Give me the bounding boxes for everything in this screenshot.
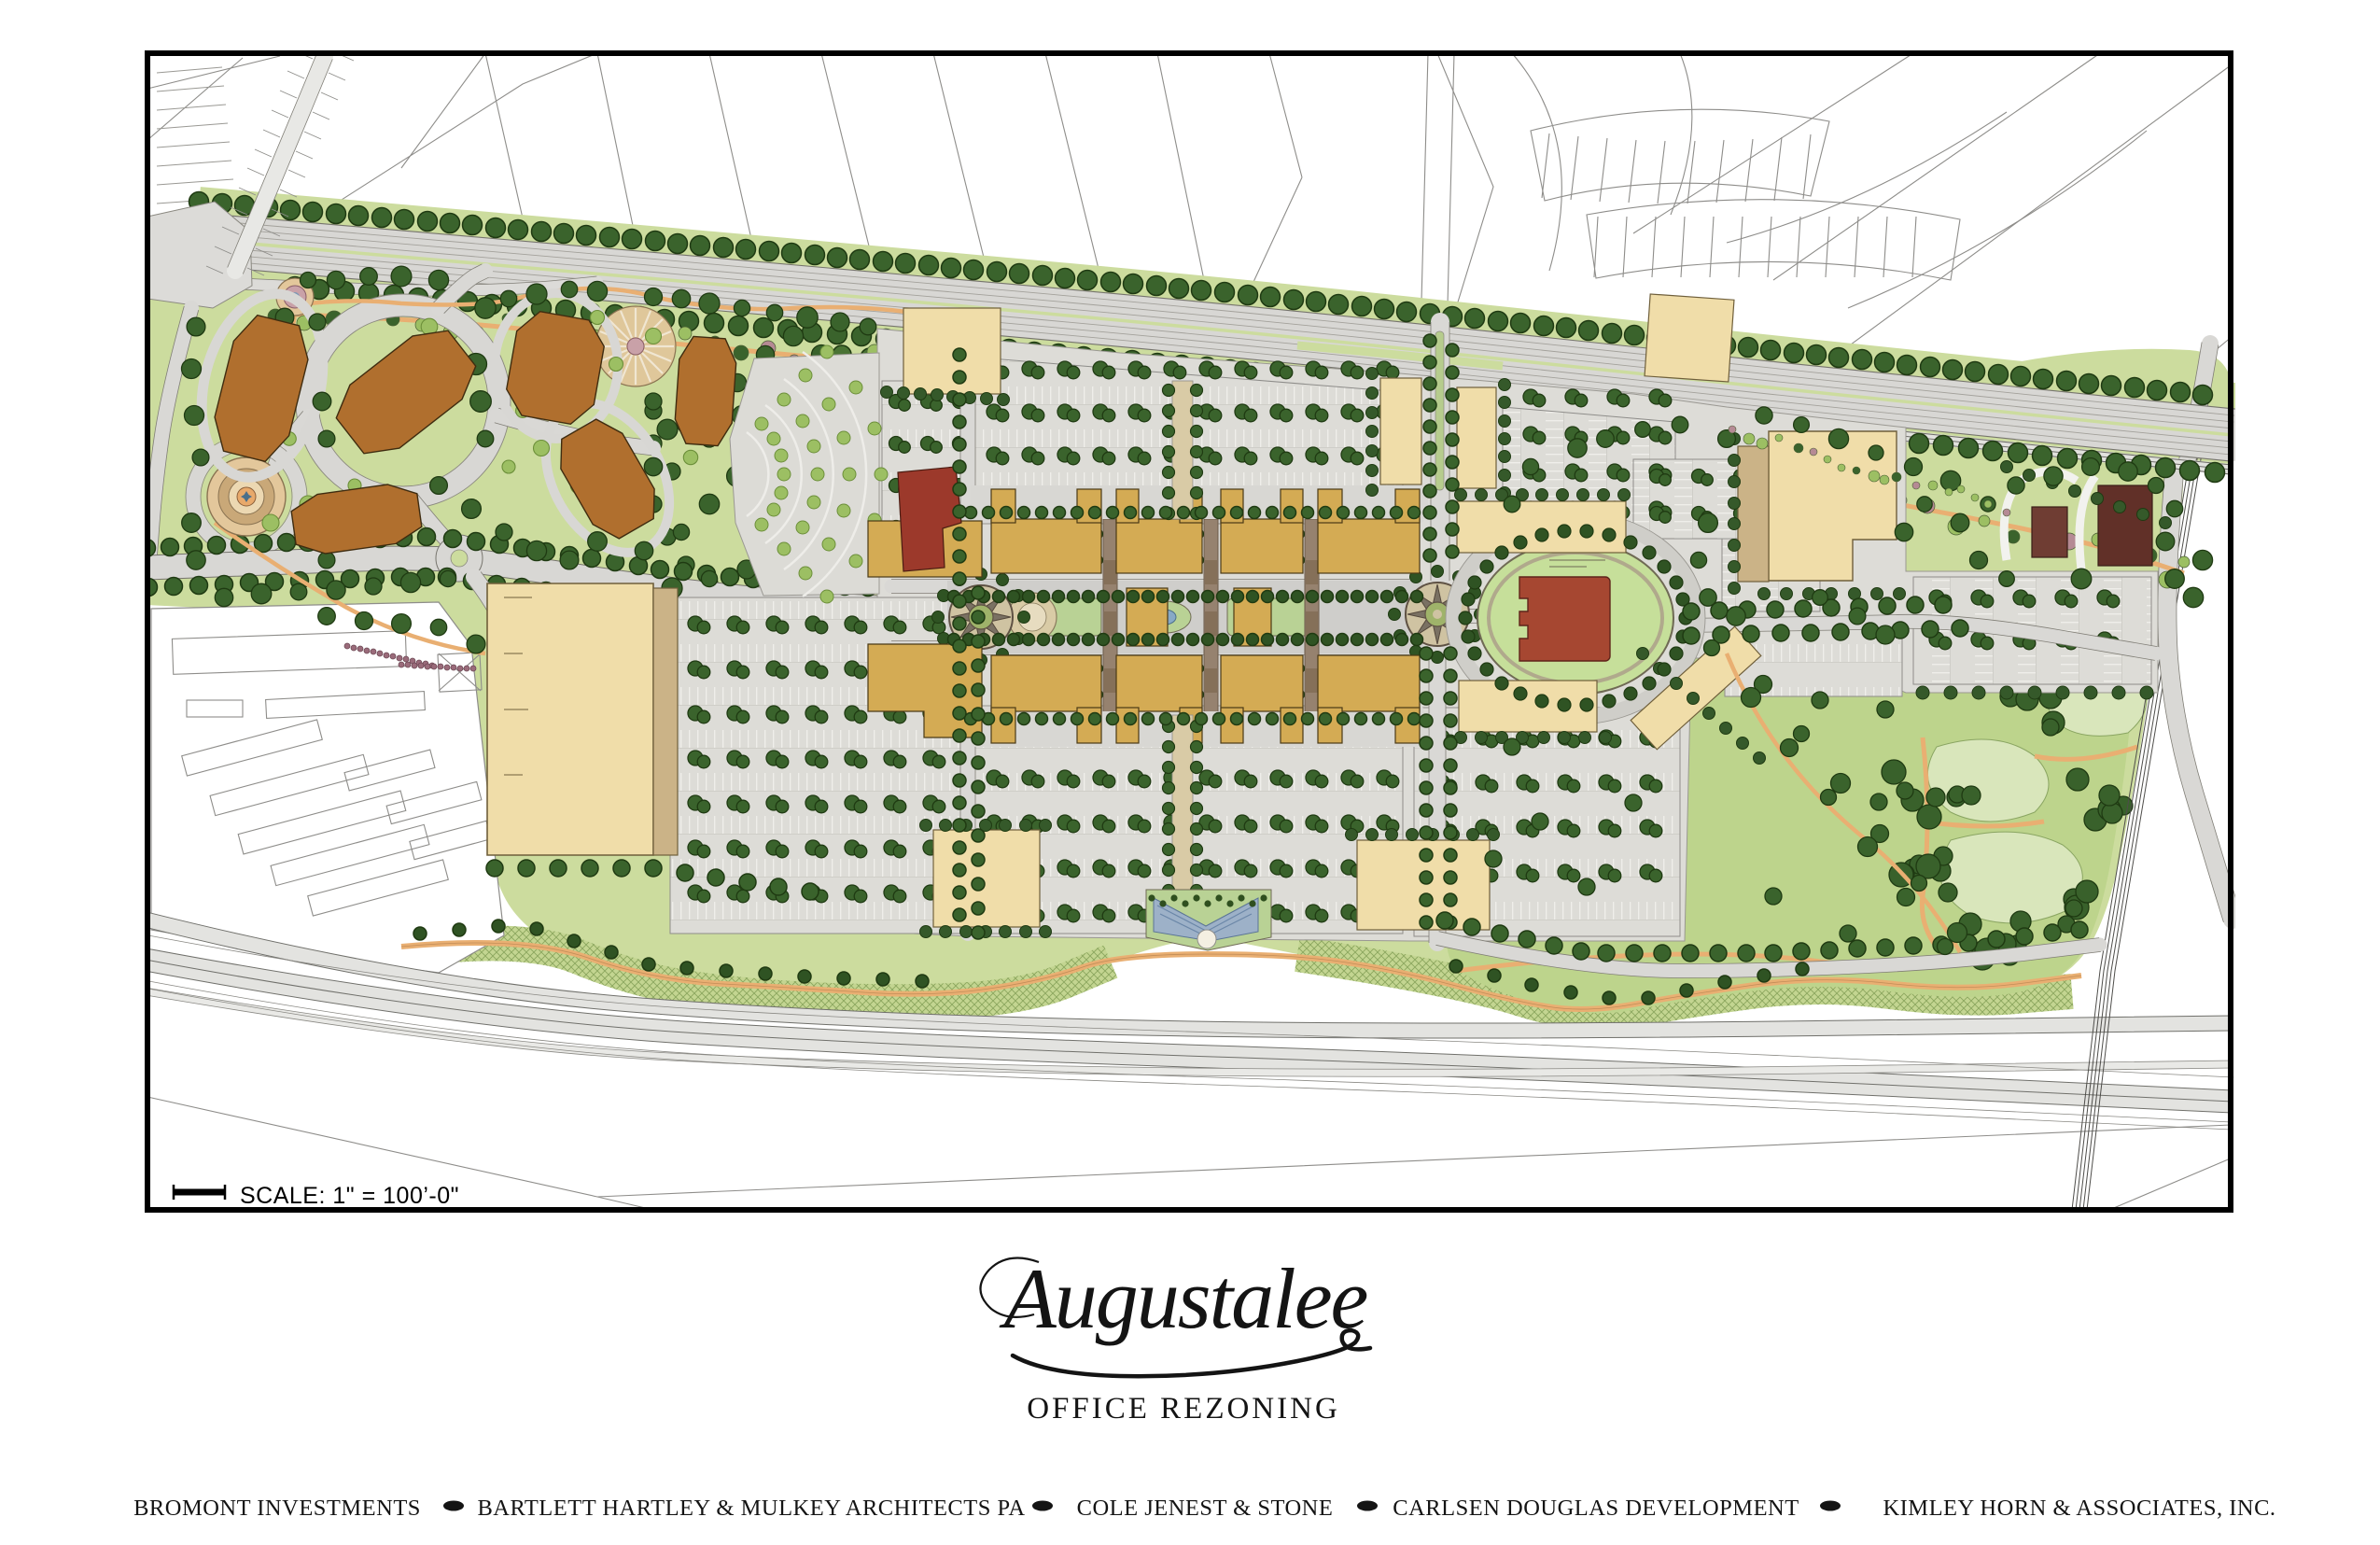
svg-text:Augustalee: Augustalee	[999, 1251, 1367, 1346]
svg-text:SCALE: 1" = 100’-0": SCALE: 1" = 100’-0"	[240, 1183, 459, 1209]
svg-text:CARLSEN DOUGLAS DEVELOPMENT: CARLSEN DOUGLAS DEVELOPMENT	[1393, 1496, 1799, 1521]
svg-text:OFFICE REZONING: OFFICE REZONING	[1027, 1392, 1340, 1426]
svg-text:KIMLEY HORN & ASSOCIATES, INC.: KIMLEY HORN & ASSOCIATES, INC.	[1883, 1496, 2275, 1521]
svg-text:BROMONT INVESTMENTS: BROMONT INVESTMENTS	[133, 1496, 421, 1521]
svg-text:BARTLETT HARTLEY & MULKEY ARCH: BARTLETT HARTLEY & MULKEY ARCHITECTS PA	[477, 1496, 1025, 1521]
svg-text:COLE JENEST & STONE: COLE JENEST & STONE	[1077, 1496, 1334, 1521]
